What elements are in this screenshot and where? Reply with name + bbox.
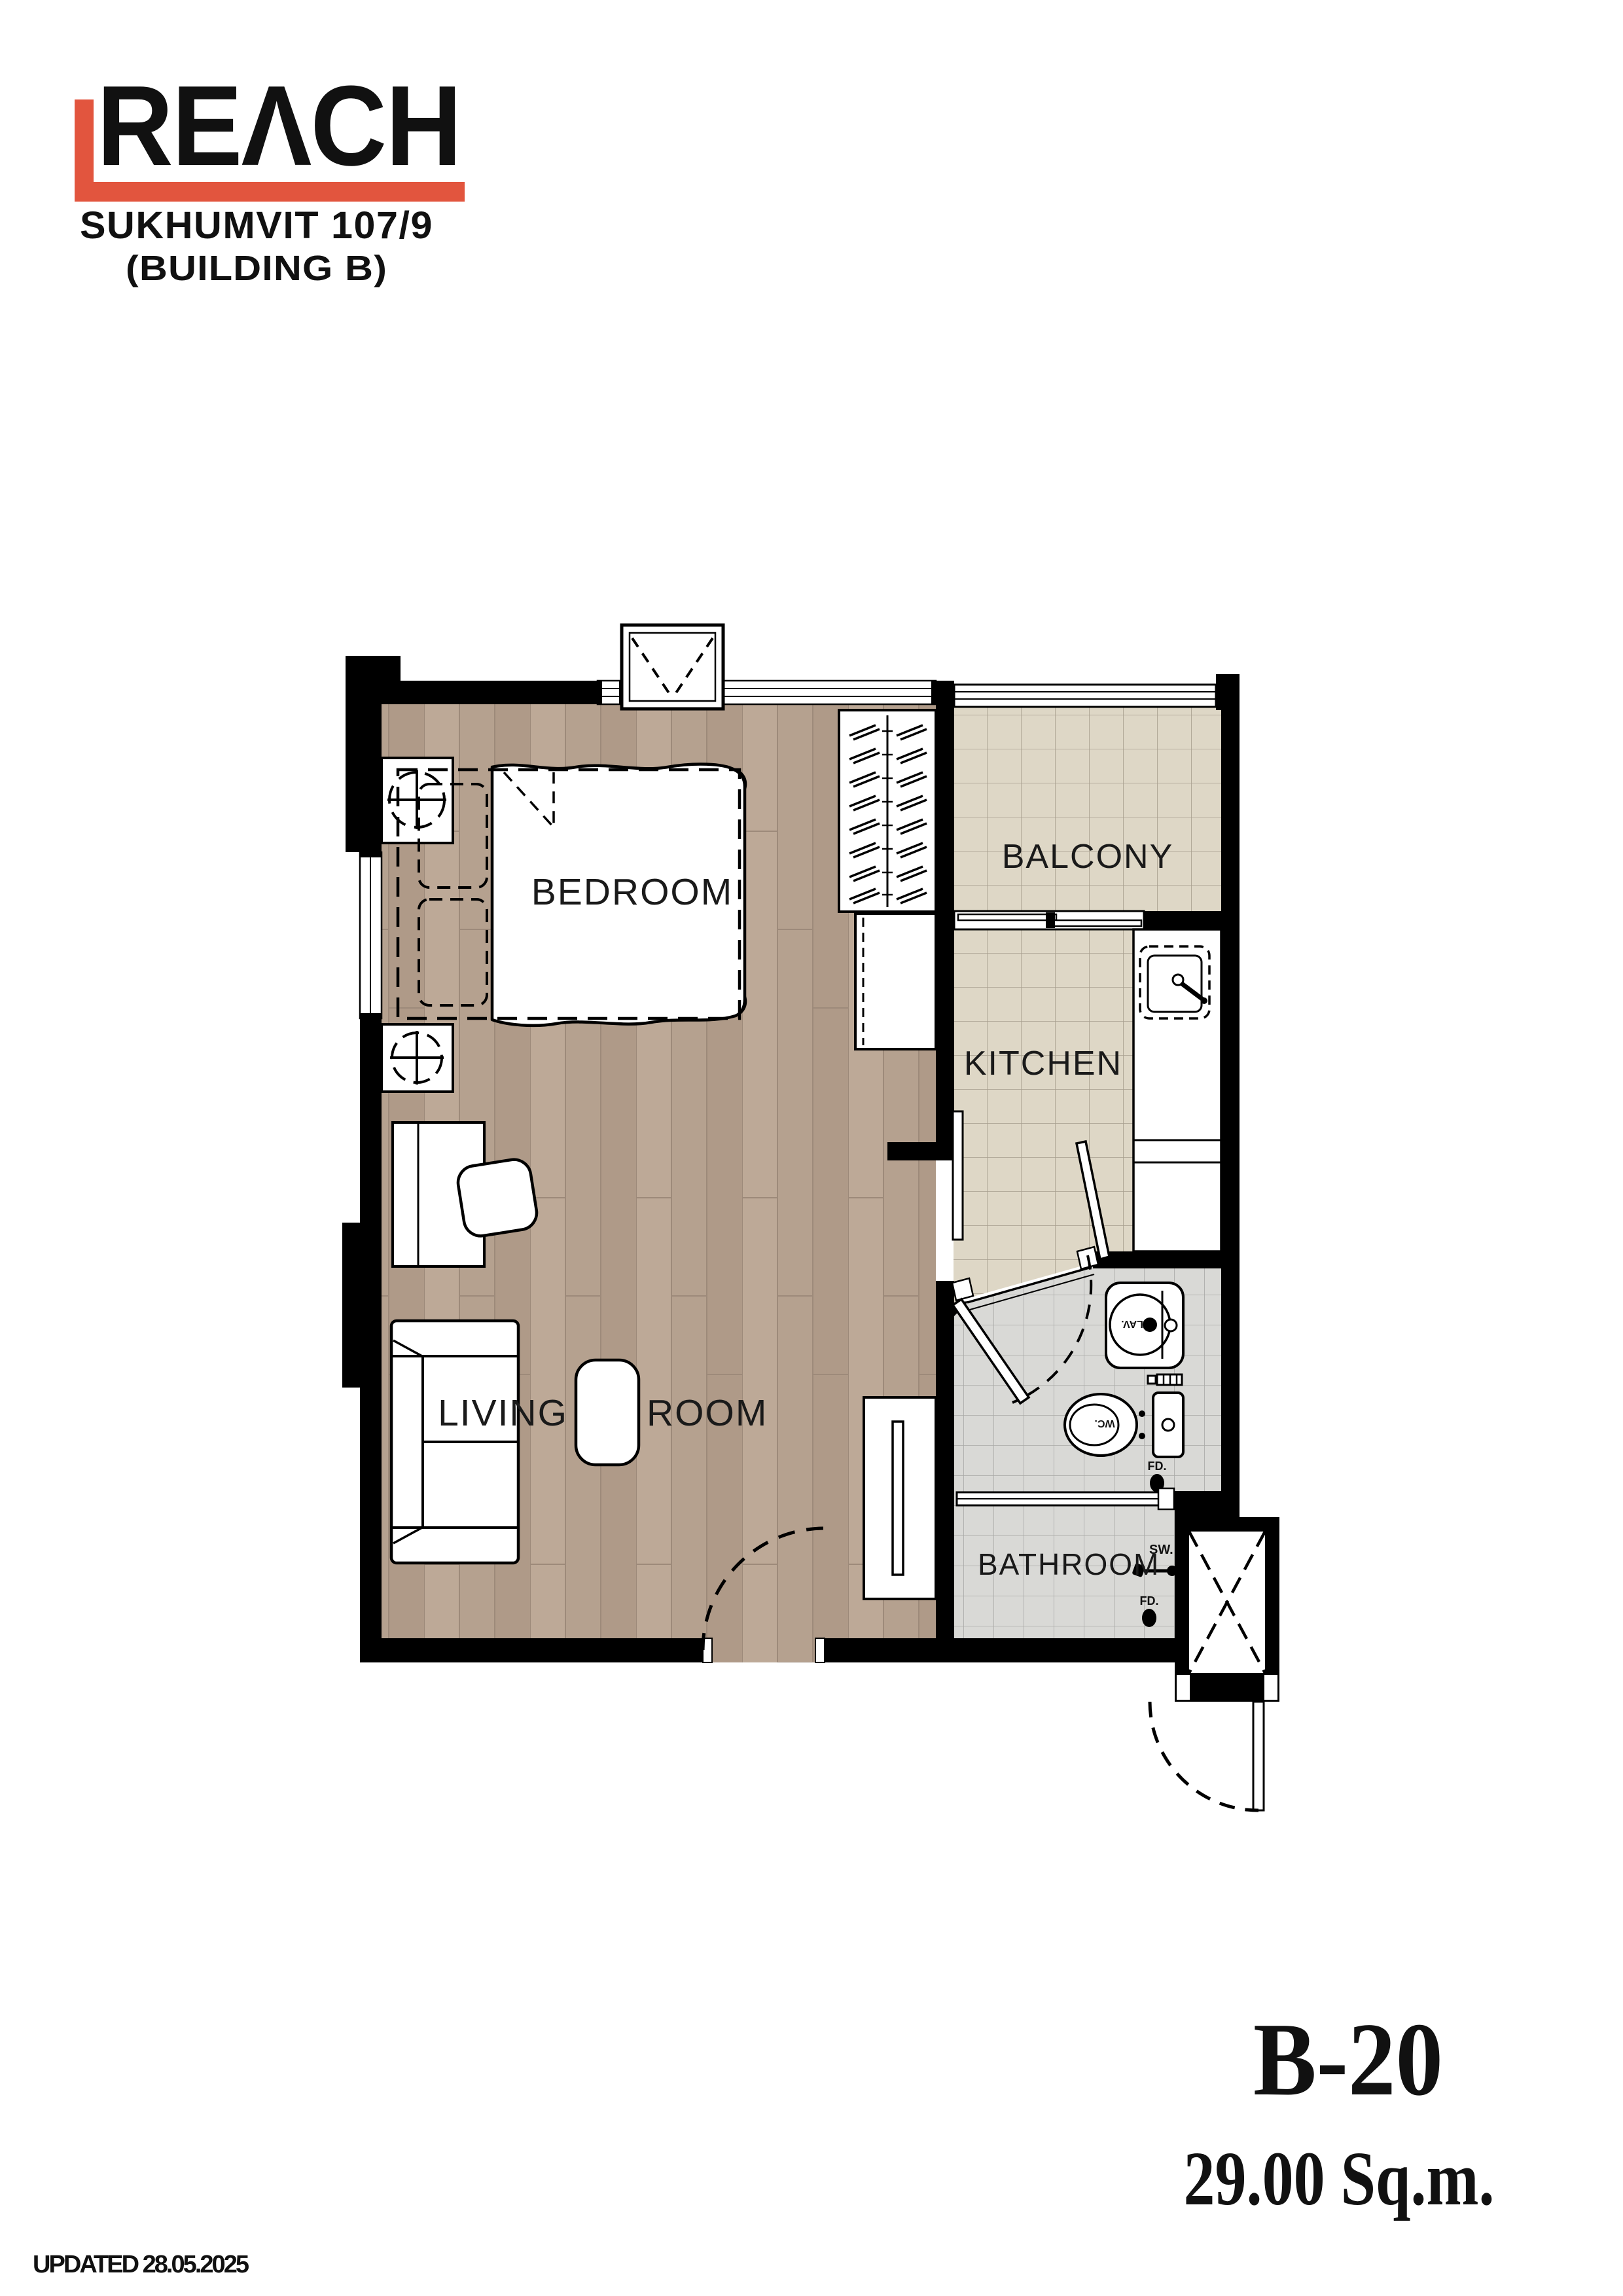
floor-drain-label-2: FD. [1140, 1594, 1159, 1607]
left-wall-window [360, 852, 382, 1018]
header: REΛCH SUKHUMVIT 107/9 (BUILDING B) [75, 62, 465, 288]
stop-valve-icon [1148, 1374, 1182, 1385]
desk-chair [455, 1157, 539, 1238]
unit-number: B-20 [1253, 2001, 1443, 2117]
shaft [1175, 1517, 1279, 1702]
sofa [391, 1321, 518, 1563]
unit-area: 29.00 Sq.m. [1184, 2136, 1495, 2221]
kitchen-fixtures [1133, 929, 1221, 1251]
lavatory-label: LAV. [1121, 1318, 1143, 1329]
floor-plan-document: REΛCH SUKHUMVIT 107/9 (BUILDING B) [0, 0, 1623, 2296]
toilet-icon: WC. [1065, 1393, 1183, 1457]
tv-cabinet [864, 1397, 936, 1599]
project-name: SUKHUMVIT 107/9 [80, 204, 433, 247]
shower-label: SW. [1149, 1543, 1173, 1557]
balcony-floor [954, 707, 1221, 911]
balcony-railing [954, 685, 1216, 707]
logo-text: REΛCH [97, 62, 461, 189]
updated-date: UPDATED 28.05.2025 [33, 2251, 252, 2278]
unit-info: B-20 29.00 Sq.m. [1184, 2001, 1495, 2221]
tv-icon [893, 1422, 903, 1575]
dresser [855, 914, 936, 1049]
shower-screen [957, 1488, 1174, 1509]
ac-condenser-icon [622, 625, 723, 709]
kitchen-sink-icon [1140, 946, 1209, 1018]
reach-logo-icon: REΛCH [75, 62, 465, 202]
coffee-table [576, 1360, 639, 1465]
entrance-door-swing-arc [1150, 1702, 1258, 1810]
nightstand-bottom [382, 1024, 453, 1092]
lavatory-basin-icon: LAV. [1106, 1283, 1183, 1368]
kitchen-door-leaf [953, 1111, 963, 1240]
bedroom-label: BEDROOM [531, 871, 734, 913]
logo-bracket-left [75, 99, 94, 202]
wardrobe [839, 710, 936, 912]
living-room-label-word1: LIVING [438, 1392, 568, 1434]
floor-drain-label-1: FD. [1148, 1460, 1167, 1473]
door-jamb [952, 1278, 973, 1300]
balcony-sliding-door [954, 911, 1221, 929]
toilet-label: WC. [1094, 1418, 1115, 1429]
bathroom-label: BATHROOM [978, 1547, 1160, 1581]
living-room-label-word2: ROOM [647, 1392, 768, 1434]
kitchen-label: KITCHEN [964, 1045, 1122, 1083]
wood-floor-door-threshold [712, 1638, 815, 1662]
balcony-label: BALCONY [1002, 838, 1174, 876]
entrance-door-leaf [1253, 1702, 1264, 1810]
building-name: (BUILDING B) [126, 249, 387, 288]
wall-pillar [342, 1223, 382, 1388]
floor-plan-page: REΛCH SUKHUMVIT 107/9 (BUILDING B) [0, 0, 1623, 2296]
